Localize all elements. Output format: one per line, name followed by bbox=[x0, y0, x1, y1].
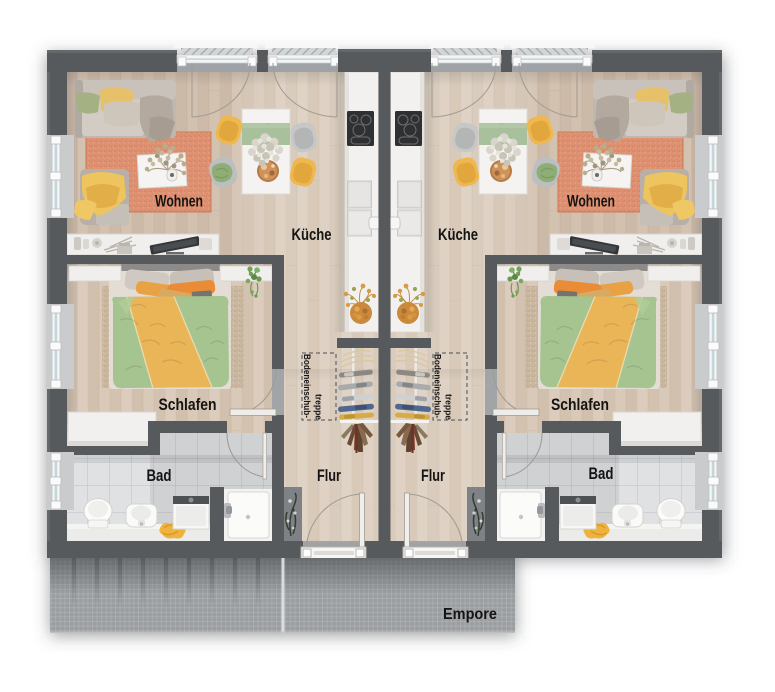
svg-text:Bodeneinschub-: Bodeneinschub- bbox=[432, 354, 443, 418]
svg-text:Küche: Küche bbox=[292, 225, 332, 244]
svg-text:Küche: Küche bbox=[438, 225, 478, 244]
svg-text:Schlafen: Schlafen bbox=[159, 395, 217, 414]
svg-text:Bad: Bad bbox=[589, 464, 614, 483]
svg-text:Bodeneinschub-: Bodeneinschub- bbox=[301, 354, 312, 418]
svg-text:Flur: Flur bbox=[317, 466, 341, 485]
svg-text:Wohnen: Wohnen bbox=[155, 192, 203, 211]
svg-text:Empore: Empore bbox=[443, 606, 497, 623]
svg-text:treppe: treppe bbox=[443, 394, 454, 420]
svg-text:treppe: treppe bbox=[313, 394, 324, 420]
svg-text:Bad: Bad bbox=[147, 466, 172, 485]
svg-text:Schlafen: Schlafen bbox=[551, 395, 609, 414]
svg-text:Flur: Flur bbox=[421, 466, 445, 485]
svg-text:Wohnen: Wohnen bbox=[567, 192, 615, 211]
